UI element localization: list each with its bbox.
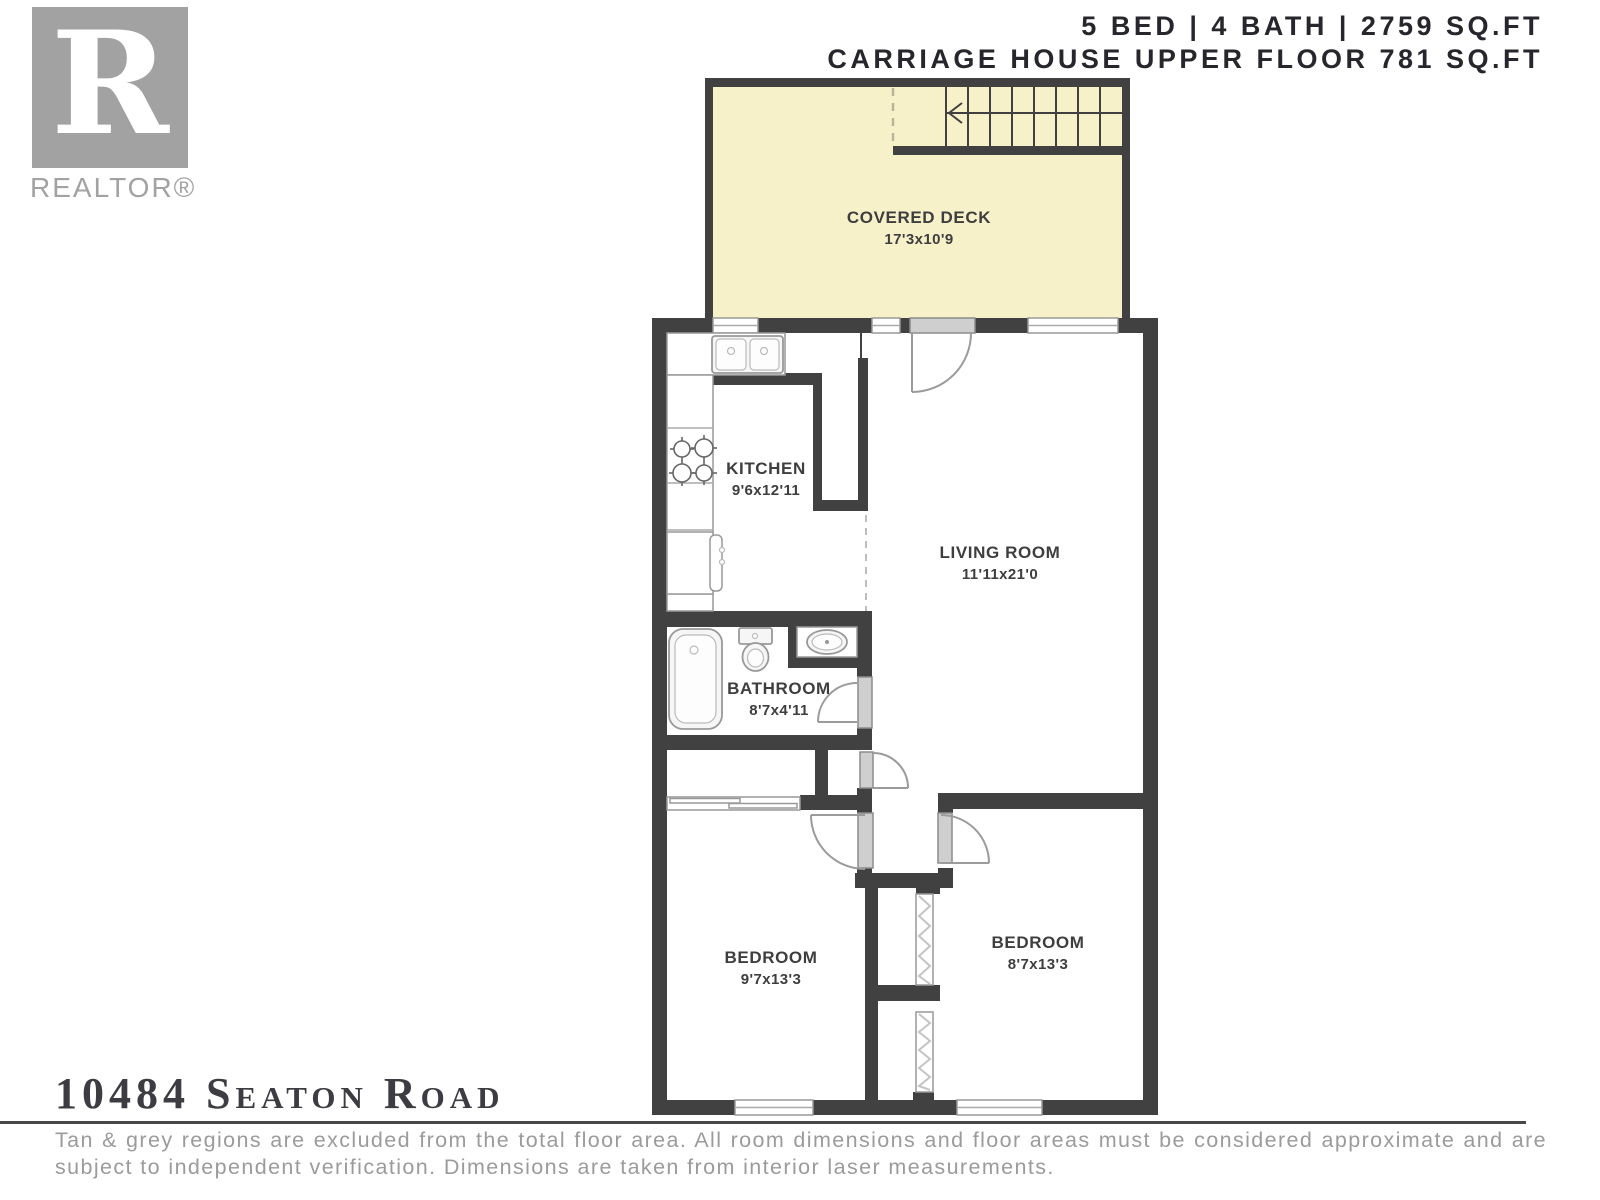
covered-deck-area [705, 78, 1130, 318]
room-label-bedroom-left: BEDROOM 9'7x13'3 [725, 948, 818, 988]
floorplan-page: 5 BED | 4 BATH | 2759 SQ.FT CARRIAGE HOU… [0, 0, 1600, 1200]
window-icon [957, 1100, 1042, 1115]
realtor-wordmark: REALTOR® [30, 172, 230, 204]
room-label-living-room: LIVING ROOM 11'11x21'0 [940, 543, 1061, 583]
footer-divider [0, 1121, 1526, 1124]
bathtub-icon [669, 629, 722, 729]
room-label-bedroom-right: BEDROOM 8'7x13'3 [992, 933, 1085, 973]
bifold-closet-door-icon [916, 894, 933, 985]
bed-bath-sqft: 5 BED | 4 BATH | 2759 SQ.FT [827, 10, 1543, 43]
left-bedroom-door-icon [811, 813, 873, 869]
window-icon [1028, 318, 1118, 333]
doors [811, 318, 989, 869]
disclaimer-text: Tan & grey regions are excluded from the… [55, 1127, 1547, 1180]
right-bedroom-door-icon [938, 813, 989, 863]
toilet-icon [739, 628, 772, 671]
floor-plan-drawing [0, 0, 1600, 1200]
window-icon [735, 1100, 813, 1115]
bathroom-sink-icon [797, 627, 857, 657]
property-address: 10484 Seaton Road [55, 1072, 505, 1116]
closet-door-icon [860, 752, 908, 788]
deck-entry-door-icon [910, 318, 975, 392]
carriage-house-sqft: CARRIAGE HOUSE UPPER FLOOR 781 SQ.FT [827, 43, 1543, 76]
fridge-icon [667, 532, 725, 594]
room-label-bathroom: BATHROOM 8'7x4'11 [727, 679, 831, 719]
realtor-logo-icon: R [32, 7, 188, 168]
listing-summary: 5 BED | 4 BATH | 2759 SQ.FT CARRIAGE HOU… [827, 10, 1543, 76]
window-icon [713, 318, 758, 333]
closet-sliding-door-icon [667, 797, 800, 810]
double-sink-icon [712, 336, 783, 373]
realtor-logo-letter: R [51, 13, 169, 155]
room-label-kitchen: KITCHEN 9'6x12'11 [726, 459, 806, 499]
bifold-closet-door-icon [916, 1012, 933, 1092]
window-icon [872, 318, 900, 333]
room-label-covered-deck: COVERED DECK 17'3x10'9 [847, 208, 991, 248]
